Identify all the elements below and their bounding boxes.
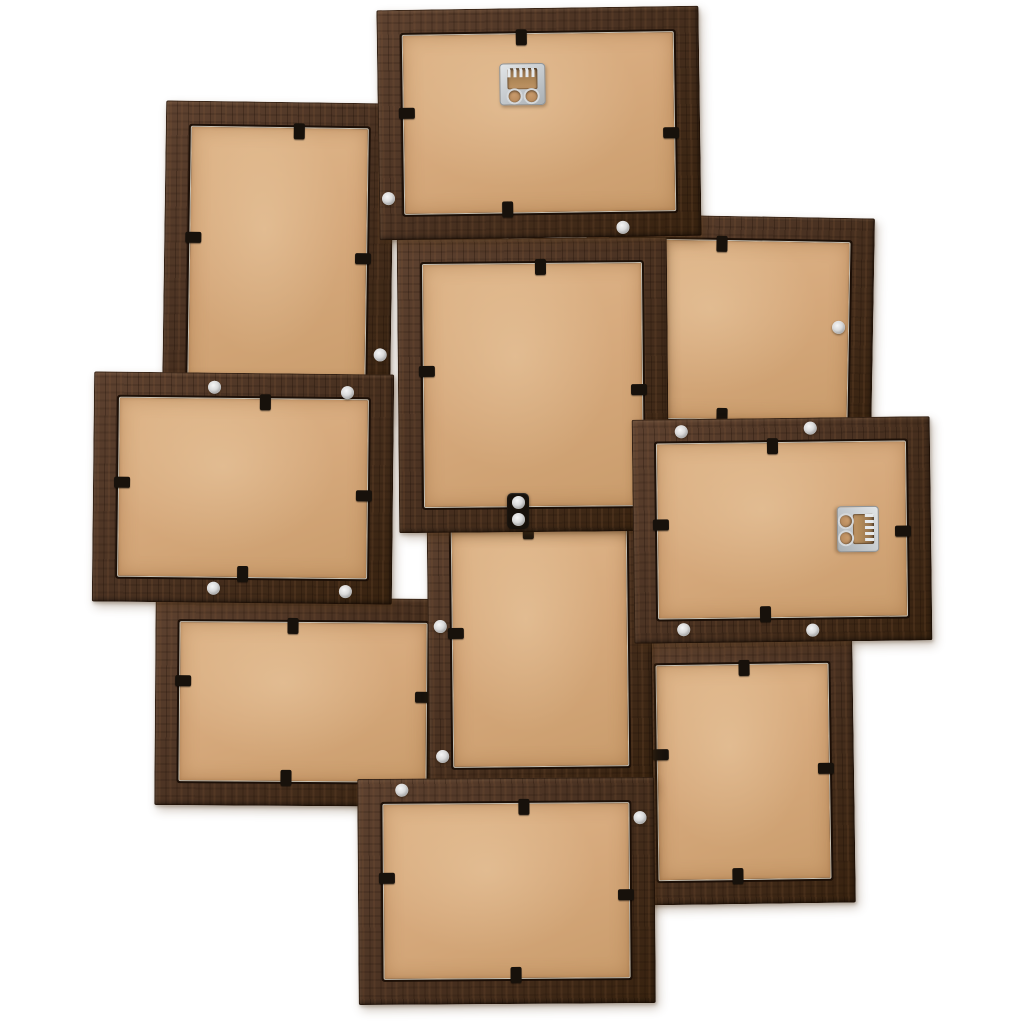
retainer-clip [631, 384, 647, 395]
screw [436, 749, 449, 762]
retainer-clip [653, 749, 669, 760]
screw [434, 620, 447, 633]
hanger-screw-hole [840, 532, 852, 544]
screw [512, 496, 525, 509]
retainer-clip [510, 967, 521, 983]
photo-backing [118, 398, 368, 579]
screw [832, 321, 845, 334]
frame-lower-right-portrait [631, 638, 856, 905]
retainer-clip [379, 873, 395, 884]
screw [804, 421, 817, 434]
retainer-clip [175, 675, 191, 686]
frame-top-landscape [376, 6, 701, 240]
retainer-clip [618, 889, 634, 900]
retainer-clip [739, 660, 750, 676]
photo-backing [657, 664, 831, 880]
screw [207, 381, 220, 394]
retainer-clip [281, 770, 292, 786]
retainer-clip [766, 438, 777, 454]
hanger-sawtooth-window [507, 68, 537, 89]
hanger-plate [499, 63, 546, 106]
frame-lower-left-landscape [154, 597, 451, 807]
sawtooth-hanger [499, 63, 546, 106]
retainer-clip [399, 108, 415, 119]
retainer-clip [716, 236, 727, 252]
retainer-clip [259, 394, 270, 410]
hanger-screw-hole [525, 90, 537, 102]
photo-backing [403, 32, 675, 214]
hanger-plate [837, 506, 880, 553]
frame-lower-center-portrait [426, 502, 653, 792]
retainer-clip [356, 491, 372, 502]
retainer-clip [114, 477, 130, 488]
retainer-clip [448, 628, 464, 639]
sawtooth-teeth [507, 68, 537, 77]
screw [806, 624, 819, 637]
retainer-clip [760, 606, 771, 622]
screw [382, 192, 395, 205]
screw [395, 783, 408, 796]
retainer-clip [294, 123, 305, 139]
photo-backing [188, 127, 368, 395]
screw [674, 425, 687, 438]
screw [677, 623, 690, 636]
frame-bottom-landscape [357, 777, 656, 1005]
screw [374, 348, 387, 361]
retainer-clip [653, 519, 669, 530]
photo-backing [423, 263, 643, 507]
frame-center-portrait [397, 237, 670, 533]
photo-backing [452, 527, 628, 767]
joint-connector [507, 493, 529, 529]
retainer-clip [818, 763, 834, 774]
retainer-clip [237, 566, 248, 582]
photo-backing [383, 803, 629, 979]
retainer-clip [895, 525, 911, 536]
retainer-clip [288, 618, 299, 634]
retainer-clip [733, 868, 744, 884]
sawtooth-teeth [865, 514, 874, 544]
hanger-sawtooth-window [853, 514, 874, 544]
hanger-screw-hole [840, 515, 852, 527]
sawtooth-hanger [837, 506, 880, 553]
hanger-screw-hole [508, 90, 520, 102]
retainer-clip [663, 127, 679, 138]
screw [616, 221, 629, 234]
retainer-clip [419, 366, 435, 377]
screw [633, 811, 646, 824]
frame-left-middle-landscape [92, 371, 394, 604]
collage-frame-back-photo [0, 0, 1024, 1024]
frame-right-landscape [632, 416, 933, 644]
screw [341, 386, 354, 399]
retainer-clip [502, 201, 513, 217]
screw [512, 513, 525, 526]
screw [339, 585, 352, 598]
retainer-clip [516, 29, 527, 45]
screw [207, 581, 220, 594]
photo-backing [179, 622, 426, 782]
retainer-clip [355, 253, 371, 264]
retainer-clip [185, 232, 201, 243]
retainer-clip [518, 799, 529, 815]
retainer-clip [534, 259, 545, 275]
